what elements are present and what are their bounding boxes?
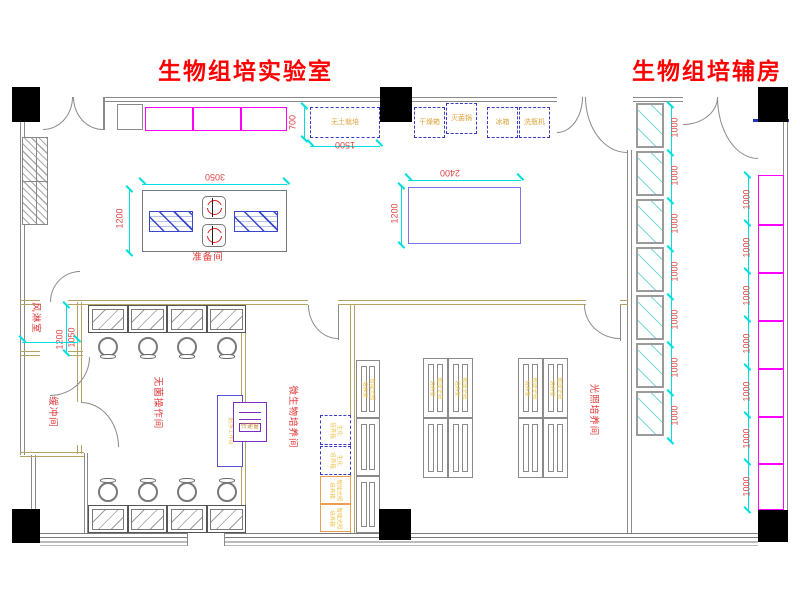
door-arc [717, 97, 758, 159]
window-panel [636, 103, 664, 148]
stool-back [179, 354, 195, 359]
dim-label-1000: 1000 [670, 352, 681, 384]
door-arc-micro-room [308, 305, 338, 339]
buffer-room-label: 缓冲间 [46, 392, 58, 432]
workbench [88, 305, 128, 333]
light-incubator-label: 智能光照培养箱 [329, 507, 342, 529]
culture-rack-label: 智能光照培养架 [524, 377, 537, 399]
bench-divider [759, 368, 783, 370]
pass-window: 传递窗 [233, 402, 267, 442]
door-arc-air-shower-bottom [50, 357, 90, 396]
light-incubator: 智能光照培养箱 [320, 504, 351, 532]
wall-segment [31, 455, 36, 511]
stool [217, 482, 237, 502]
window-panel [636, 391, 664, 436]
column [380, 87, 412, 122]
dim-label-1000: 1000 [670, 208, 681, 240]
wall-segment [103, 97, 380, 102]
workbench [128, 505, 168, 533]
sink-bottom [202, 224, 226, 247]
door-arc-buffer [81, 402, 119, 447]
bench-divider [759, 320, 783, 322]
faucet-icon [207, 200, 222, 215]
floor-plan: 生物组培实验室 生物组培辅房 无土 [0, 0, 800, 600]
dim-label-1200: 1200 [55, 318, 66, 362]
dim-label-1000: 1000 [742, 471, 753, 503]
workbench [207, 305, 247, 333]
drainer-right [234, 211, 278, 232]
culture-rack-cell: 智能光照培养架 [448, 358, 473, 418]
culture-rack-label: 智能光照培养架 [362, 378, 375, 400]
fridge-box: 冰箱 [487, 107, 518, 138]
dim-label-1200: 1200 [115, 197, 126, 241]
culture-rack-cell [356, 418, 380, 476]
dim-label-700: 700 [288, 108, 299, 138]
cabinet-divider [240, 108, 242, 130]
air-shower-label: 风淋室 [29, 298, 41, 338]
door-leaf [620, 305, 621, 341]
window-panel [636, 343, 664, 388]
pilaster [117, 104, 143, 130]
door-arc [557, 97, 583, 133]
culture-rack-cell [423, 418, 448, 478]
door-arc [585, 97, 627, 153]
dim-label-1000: 1000 [670, 160, 681, 192]
dim-label-1000: 1000 [670, 256, 681, 288]
soilless-culture-label: 无土栽培 [331, 119, 359, 127]
dim-label-1000: 1000 [742, 376, 753, 408]
cabinet-divider [192, 108, 194, 130]
faucet-icon [207, 228, 222, 243]
biochem-incubator: 生化培养箱 [320, 415, 351, 445]
arrow-icon [239, 412, 261, 420]
dim-label-1000: 1000 [742, 328, 753, 360]
culture-rack-cell: 智能光照培养架 [543, 358, 568, 418]
workbench [207, 505, 247, 533]
soilless-culture-box: 无土栽培 [310, 107, 380, 138]
partition [20, 351, 40, 356]
wall-segment [633, 97, 683, 102]
light-incubator-label: 智能光照培养箱 [329, 479, 342, 501]
column [12, 87, 40, 122]
dim-label-1000: 1000 [742, 423, 753, 455]
wall-lab-aux [627, 150, 632, 533]
dim-line [22, 342, 78, 343]
drying-oven-box: 干燥箱 [414, 107, 445, 138]
column [758, 510, 788, 542]
column [12, 509, 40, 543]
magenta-bench-strip [758, 175, 784, 510]
rack-divider [36, 138, 37, 224]
culture-rack-label: 智能光照培养架 [429, 377, 442, 399]
window-panel [636, 199, 664, 244]
culture-rack-cell [518, 418, 543, 478]
prep-room-label: 准备间 [186, 252, 230, 264]
sink-top [202, 196, 226, 219]
biochem-incubator-label: 生化培养箱 [329, 422, 342, 439]
stool-back [100, 354, 116, 359]
pass-window-label: 传递窗 [239, 423, 261, 432]
bottom-window-band [40, 533, 187, 546]
window-panel [636, 151, 664, 196]
drying-oven-label: 干燥箱 [419, 119, 440, 127]
work-table [408, 187, 521, 244]
culture-rack-cell [356, 476, 380, 533]
door-leaf [338, 305, 339, 340]
dim-label-1000: 1000 [670, 400, 681, 432]
door-arc [43, 97, 73, 130]
door-arc [683, 97, 718, 125]
culture-rack-cell: 智能光照培养架 [518, 358, 543, 418]
bench-divider [759, 272, 783, 274]
stool [98, 482, 118, 502]
magenta-cabinet-row [145, 107, 287, 131]
sterile-room-label: 无菌操作间 [151, 373, 163, 433]
dim-line [401, 187, 402, 244]
dim-label-1000: 1000 [670, 304, 681, 336]
culture-rack-cell: 智能光照培养架 [356, 360, 380, 418]
light-incubator: 智能光照培养箱 [320, 476, 351, 504]
column [379, 509, 411, 540]
band-break [224, 533, 225, 546]
bottle-washer-label: 洗瓶机 [524, 119, 545, 127]
dim-label-2400: 2400 [428, 167, 472, 178]
dim-line [408, 180, 521, 181]
bottle-washer-box: 洗瓶机 [519, 107, 550, 138]
light-room-label: 光照培养间 [587, 380, 599, 440]
dim-label-1000: 1000 [742, 280, 753, 312]
door-arc-light-room [584, 305, 620, 339]
dim-line [142, 184, 287, 185]
shoe-rack [22, 137, 48, 225]
biochem-incubator: 生化培养箱 [320, 446, 351, 475]
micro-room-label: 微生物培养间 [286, 382, 298, 452]
door-arc [73, 97, 103, 130]
window-panel [636, 295, 664, 340]
sterilizer-label: 灭菌锅 [451, 115, 472, 123]
dim-line [66, 306, 67, 352]
fridge-label: 冰箱 [496, 119, 510, 127]
bench-divider [759, 224, 783, 226]
partition [77, 302, 82, 402]
column [758, 87, 788, 122]
workbench [88, 505, 128, 533]
biochem-incubator-label: 生化培养箱 [329, 452, 342, 469]
dim-line [129, 190, 130, 252]
drainer-left [149, 211, 193, 232]
stool-back [140, 354, 156, 359]
bench-divider [759, 463, 783, 465]
dim-line [304, 107, 305, 138]
stool [177, 482, 197, 502]
dim-label-1000: 1000 [742, 184, 753, 216]
door-jamb [103, 97, 105, 130]
culture-rack-cell [543, 418, 568, 478]
dim-label-1200: 1200 [390, 192, 401, 236]
workbench [167, 305, 207, 333]
door-arc-air-shower-top [50, 271, 80, 302]
dim-label-1500: 1500 [323, 139, 367, 150]
sterilizer-box: 灭菌锅 [446, 103, 477, 134]
dim-label-1000: 1000 [742, 232, 753, 264]
culture-rack-label: 智能光照培养架 [549, 377, 562, 399]
workbench [128, 305, 168, 333]
culture-rack-cell [448, 418, 473, 478]
workbench [167, 505, 207, 533]
window-panel [636, 247, 664, 292]
partition [620, 300, 628, 305]
stool [138, 482, 158, 502]
dim-label-3050: 3050 [193, 171, 237, 182]
aux-room-title: 生物组培辅房 [632, 52, 782, 86]
dim-label-1000: 1000 [670, 112, 681, 144]
main-lab-title: 生物组培实验室 [158, 52, 333, 86]
bench-divider [759, 416, 783, 418]
culture-rack-label: 智能光照培养架 [454, 377, 467, 399]
culture-rack-cell: 智能光照培养架 [423, 358, 448, 418]
band-break [187, 533, 188, 546]
bottom-window-band [225, 533, 758, 546]
partition [338, 300, 586, 305]
partition [20, 452, 84, 457]
wall-segment [412, 97, 557, 102]
stool-back [219, 354, 235, 359]
